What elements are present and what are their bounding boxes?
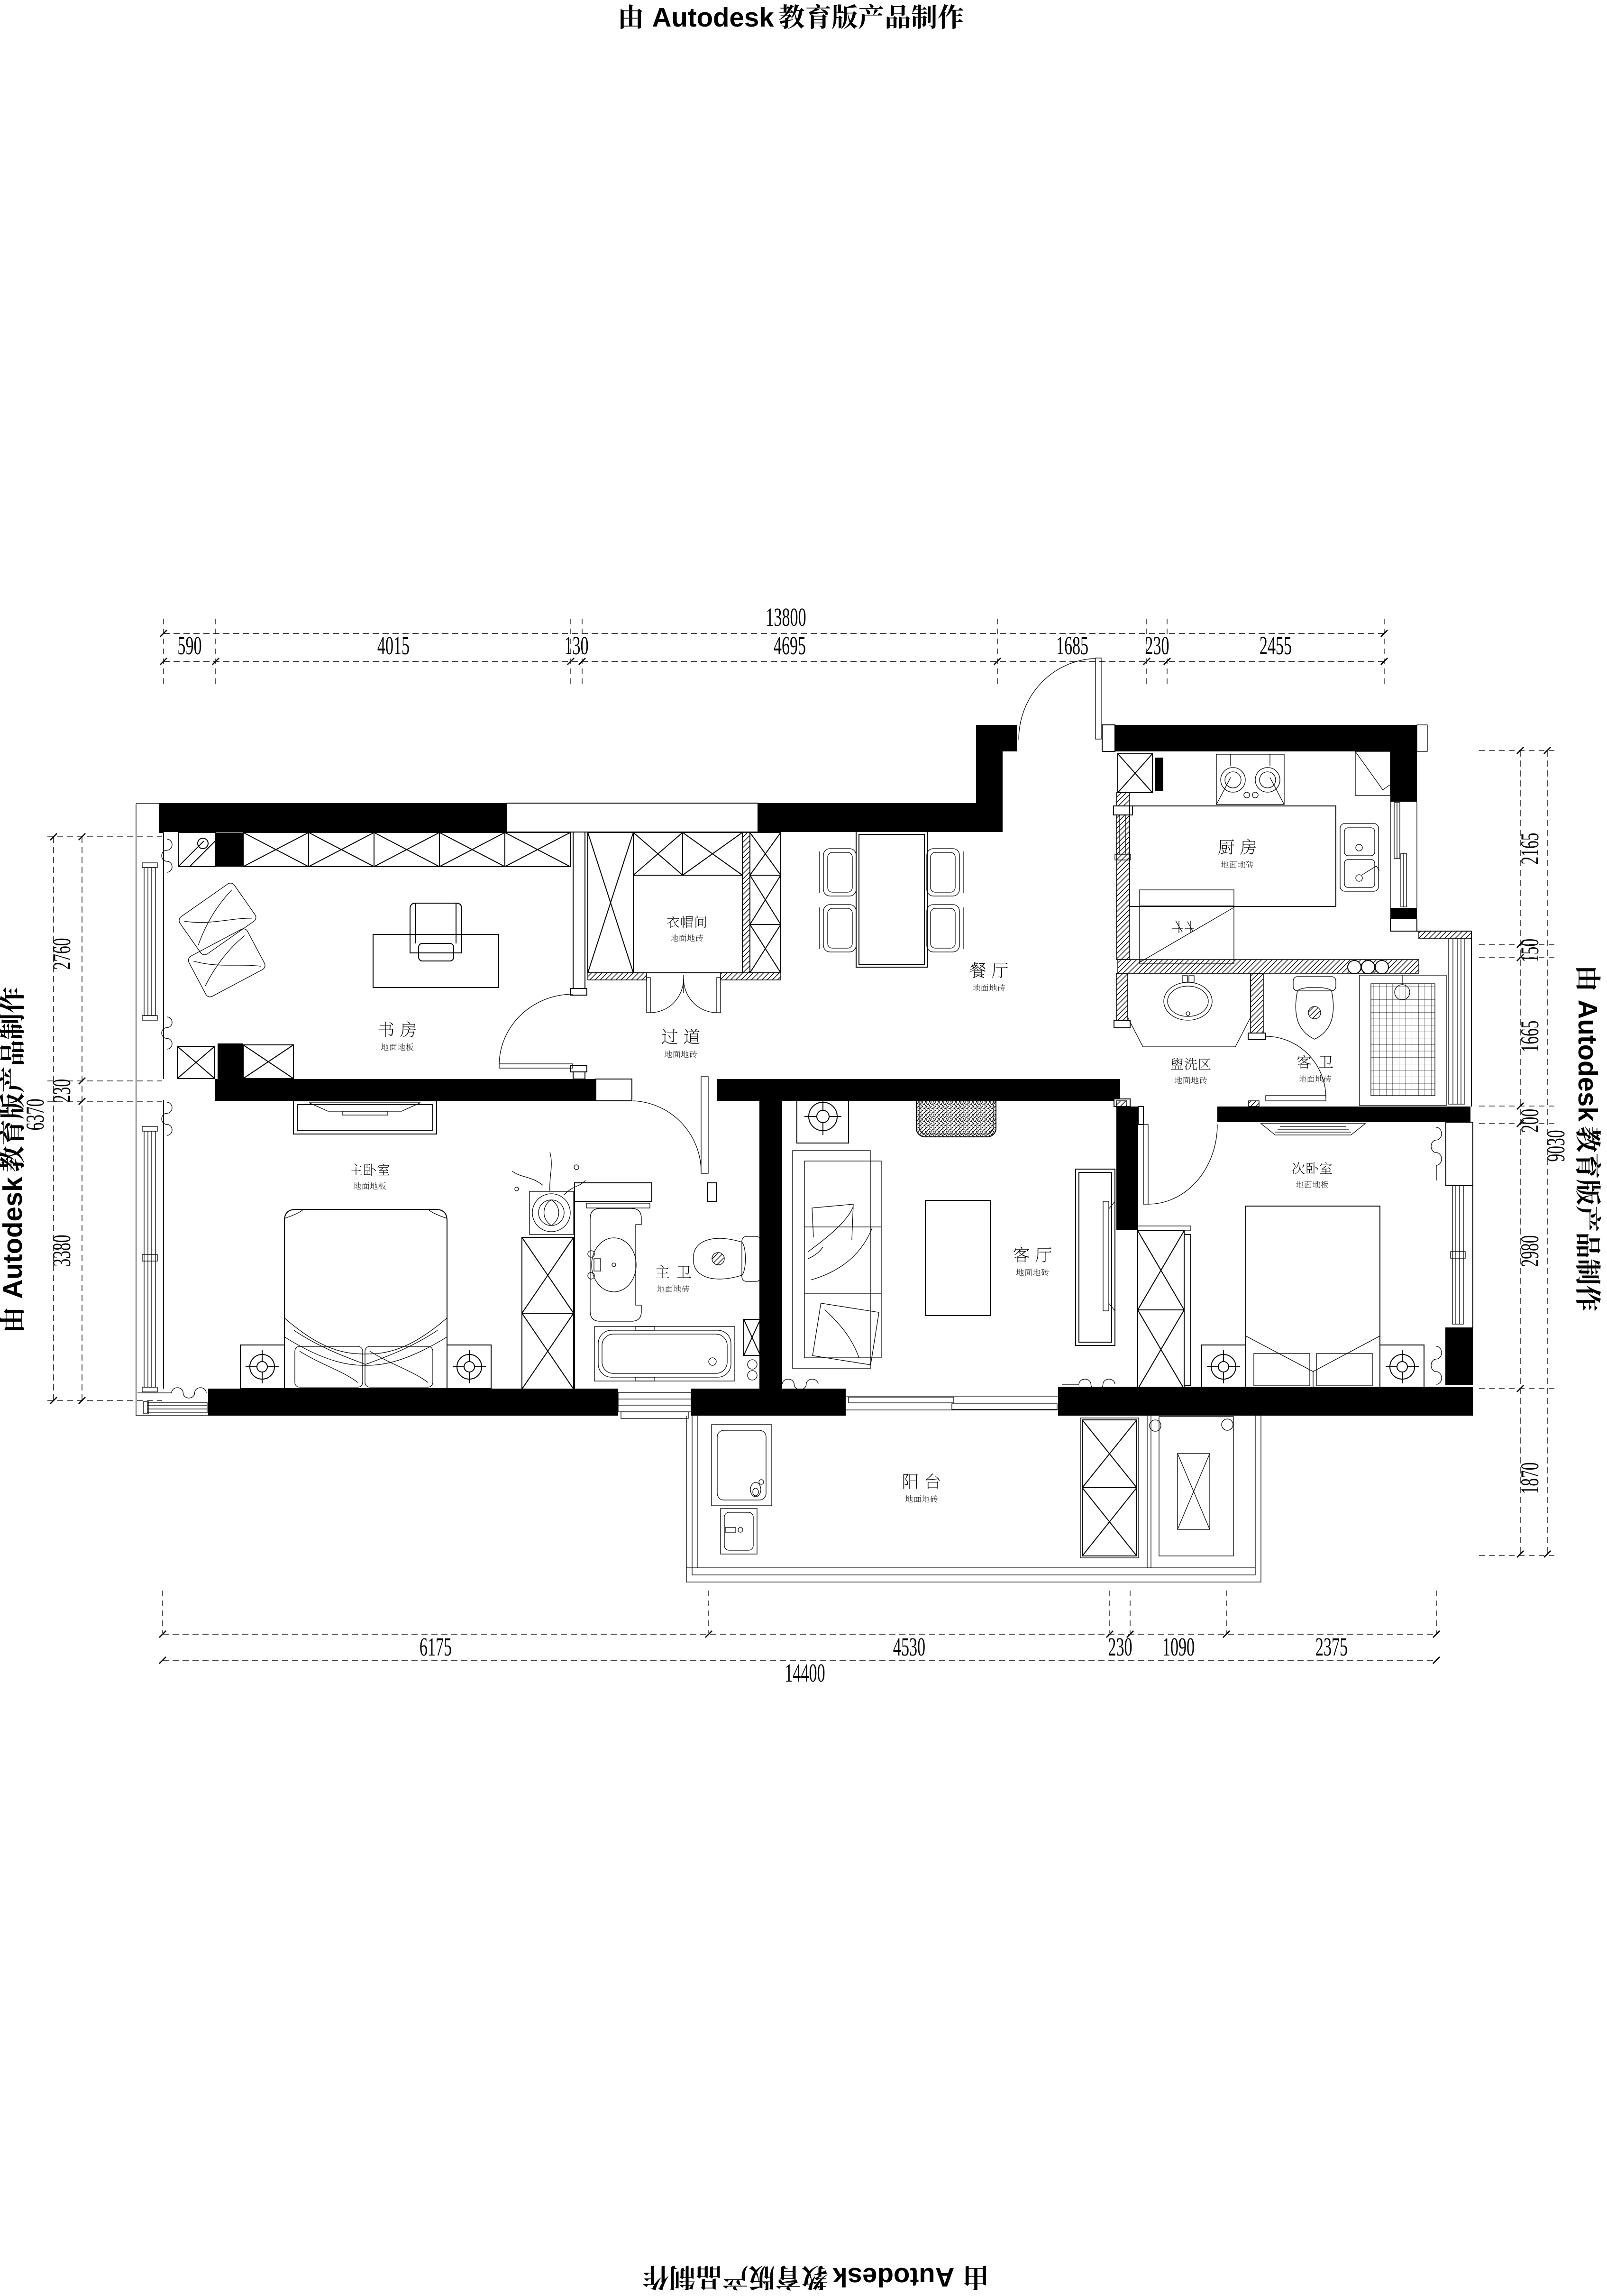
- svg-text:200: 200: [1516, 1109, 1544, 1133]
- svg-text:230: 230: [47, 1079, 76, 1103]
- svg-text:Autodesk: Autodesk: [832, 2262, 955, 2292]
- svg-text:13800: 13800: [766, 603, 806, 631]
- svg-text:1665: 1665: [1516, 1021, 1544, 1052]
- svg-text:1870: 1870: [1516, 1463, 1544, 1494]
- svg-text:590: 590: [177, 631, 201, 660]
- svg-text:150: 150: [1516, 939, 1544, 962]
- svg-text:6370: 6370: [21, 1099, 49, 1131]
- svg-text:Autodesk: Autodesk: [1573, 1000, 1603, 1122]
- svg-text:9030: 9030: [1542, 1130, 1570, 1162]
- svg-text:4530: 4530: [893, 1632, 925, 1661]
- svg-text:2760: 2760: [47, 938, 76, 970]
- svg-text:Autodesk: Autodesk: [0, 1177, 27, 1299]
- svg-text:3380: 3380: [47, 1235, 76, 1267]
- svg-text:2980: 2980: [1516, 1235, 1544, 1267]
- svg-text:1685: 1685: [1056, 631, 1088, 660]
- svg-text:2455: 2455: [1260, 631, 1292, 660]
- svg-text:1090: 1090: [1162, 1632, 1195, 1661]
- svg-text:130: 130: [564, 631, 588, 660]
- svg-text:4695: 4695: [774, 631, 806, 660]
- svg-text:Autodesk: Autodesk: [652, 2, 775, 32]
- svg-text:2375: 2375: [1315, 1632, 1348, 1661]
- svg-text:6175: 6175: [420, 1632, 452, 1661]
- svg-text:2165: 2165: [1516, 833, 1544, 865]
- svg-text:14400: 14400: [785, 1658, 825, 1687]
- svg-text:230: 230: [1145, 631, 1169, 660]
- svg-text:230: 230: [1108, 1632, 1132, 1661]
- svg-text:4015: 4015: [377, 631, 410, 660]
